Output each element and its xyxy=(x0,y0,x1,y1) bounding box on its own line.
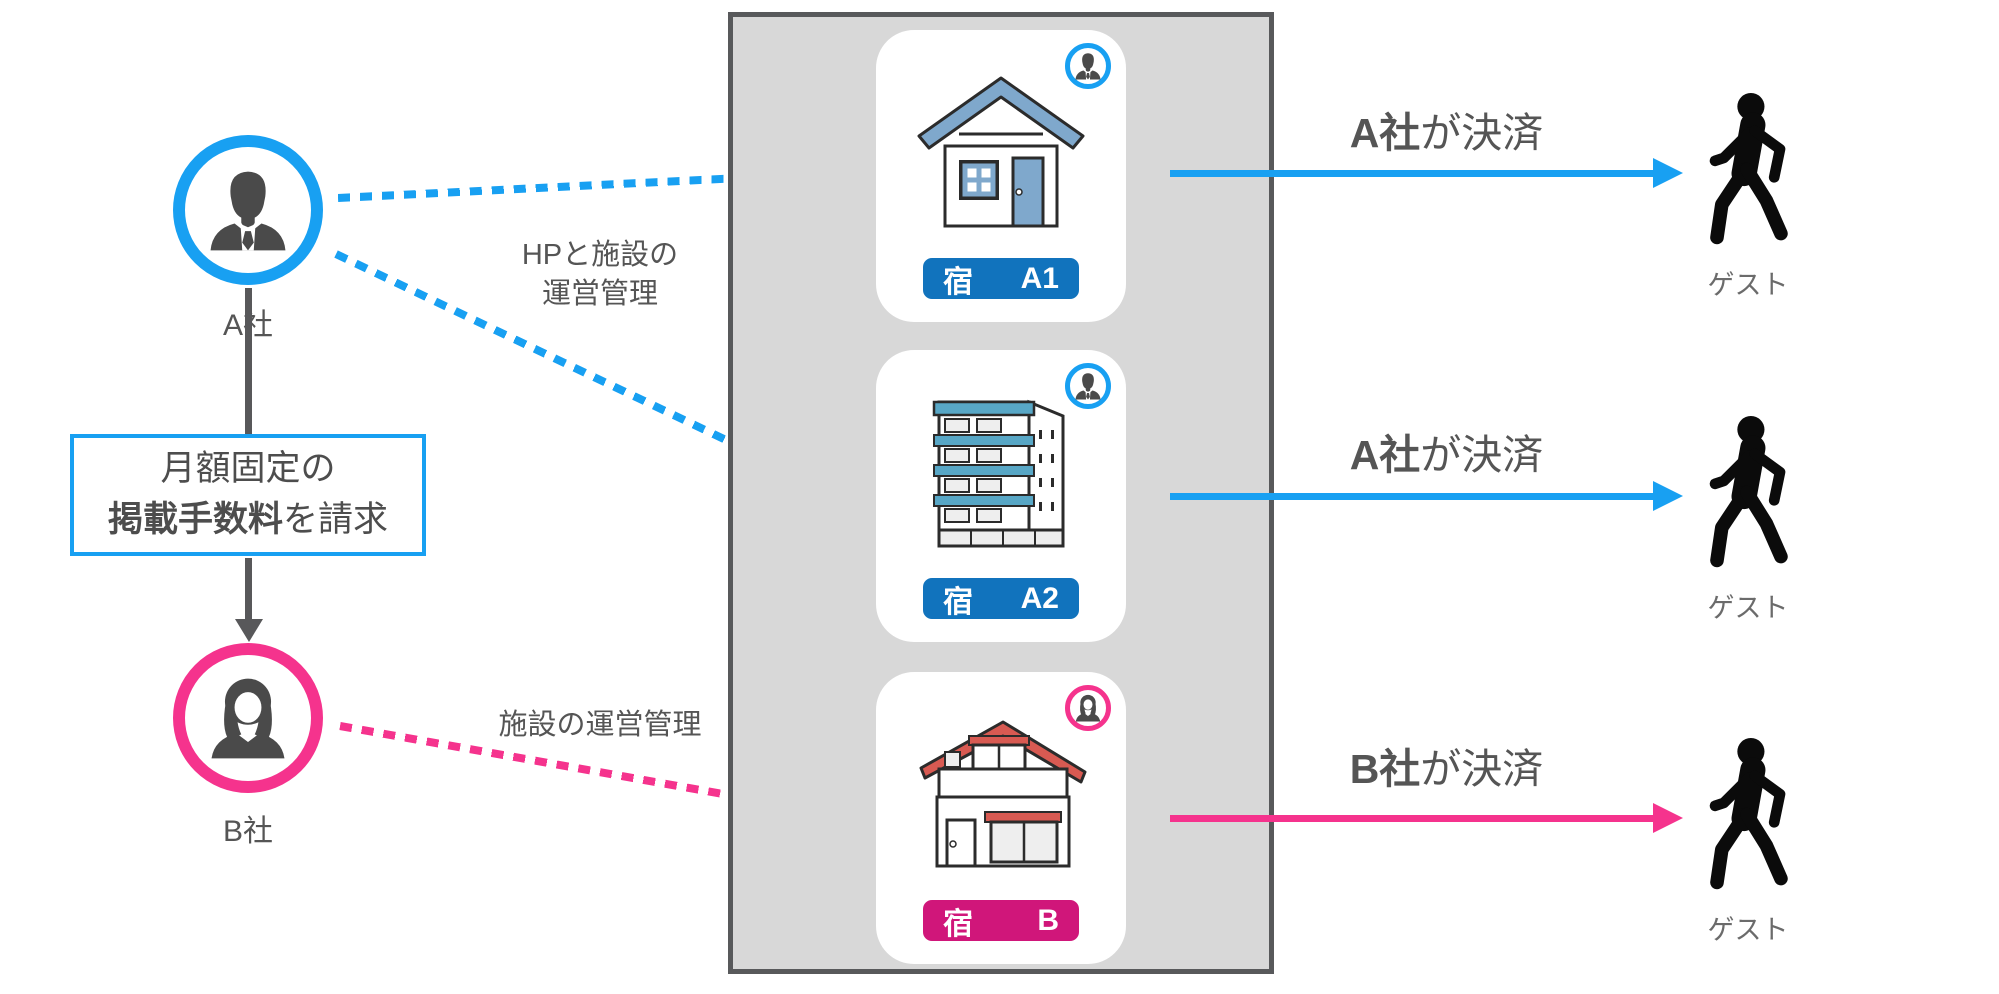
property-pill-a2: 宿 A2 xyxy=(920,575,1082,622)
walking-person-icon xyxy=(1693,415,1803,575)
settlement-label-3: B社が決済 xyxy=(1190,748,1703,791)
guest-3: ゲスト xyxy=(1688,737,1808,947)
walking-person-icon xyxy=(1693,737,1803,897)
businessman-icon xyxy=(200,162,296,258)
settlement-arrow-3 xyxy=(1170,803,1683,833)
guest-2: ゲスト xyxy=(1688,415,1808,625)
settlement-label-2: A社が決済 xyxy=(1190,434,1703,477)
fee-box: 月額固定の 掲載手数料を請求 xyxy=(70,434,426,556)
walking-person-icon xyxy=(1693,92,1803,252)
company-a-avatar xyxy=(173,135,323,285)
settlement-label-1: A社が決済 xyxy=(1190,112,1703,155)
guest-label: ゲスト xyxy=(1688,908,1808,947)
owner-badge-a1 xyxy=(1065,43,1111,89)
fee-box-line1: 月額固定の xyxy=(160,444,335,495)
owner-badge-b xyxy=(1065,685,1111,731)
apartment-building-icon xyxy=(876,388,1126,553)
property-pill-a1: 宿 A1 xyxy=(920,255,1082,302)
management-label-b: 施設の運営管理 xyxy=(440,706,760,745)
down-arrowhead-icon xyxy=(235,619,263,642)
company-b-label: B社 xyxy=(173,806,323,850)
settlement-arrow-2 xyxy=(1170,481,1683,511)
management-label-a: HPと施設の 運営管理 xyxy=(440,236,760,314)
businesswoman-icon xyxy=(1072,692,1104,724)
property-pill-b: 宿 B xyxy=(920,897,1082,944)
guest-label: ゲスト xyxy=(1688,263,1808,302)
arrowhead-icon xyxy=(1653,158,1683,188)
arrowhead-icon xyxy=(1653,481,1683,511)
diagram-canvas: A社 月額固定の 掲載手数料を請求 B社 HPと施設の 運営管理 施設の運営管理 xyxy=(0,0,1999,994)
settlement-arrow-1 xyxy=(1170,158,1683,188)
businessman-icon xyxy=(1072,50,1104,82)
two-story-house-icon xyxy=(876,710,1126,875)
businessman-icon xyxy=(1072,370,1104,402)
guest-label: ゲスト xyxy=(1688,586,1808,625)
property-card-a1: 宿 A1 xyxy=(876,30,1126,322)
company-b-avatar xyxy=(173,643,323,793)
guest-1: ゲスト xyxy=(1688,92,1808,302)
arrowhead-icon xyxy=(1653,803,1683,833)
owner-badge-a2 xyxy=(1065,363,1111,409)
property-card-a2: 宿 A2 xyxy=(876,350,1126,642)
property-card-b: 宿 B xyxy=(876,672,1126,964)
fee-box-line2: 掲載手数料を請求 xyxy=(108,495,388,546)
connector-a-to-feebox xyxy=(245,288,252,434)
house-icon xyxy=(876,68,1126,233)
businesswoman-icon xyxy=(200,670,296,766)
connector-feebox-to-b xyxy=(245,558,252,620)
